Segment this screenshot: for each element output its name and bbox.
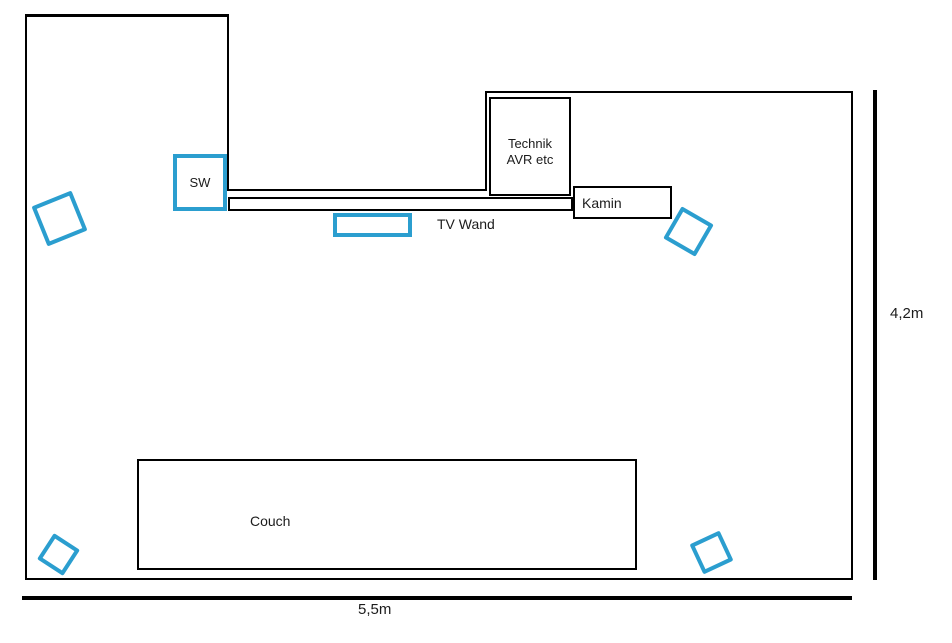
- couch-label: Couch: [250, 513, 290, 529]
- niche-vertical-wall: [485, 91, 487, 191]
- tv-wall-band: [228, 197, 573, 211]
- alcove-top-wall: [25, 14, 229, 17]
- subwoofer-box: SW: [173, 154, 227, 211]
- height-dimension-label: 4,2m: [890, 306, 923, 322]
- technik-label-line1: Technik: [508, 136, 552, 152]
- technik-label-line2: AVR etc: [507, 152, 554, 168]
- room-floor-plan: 4,2m 5,5m TV Wand Technik AVR etc Kamin …: [0, 0, 952, 643]
- width-dimension-label: 5,5m: [358, 602, 391, 618]
- tv-wall-back-line: [227, 189, 487, 191]
- technik-box: Technik AVR etc: [489, 97, 571, 196]
- top-wall: [485, 91, 853, 93]
- right-wall: [851, 91, 853, 580]
- kamin-box: Kamin: [573, 186, 672, 219]
- speaker-rear-right: [690, 531, 734, 575]
- speaker-front-left: [32, 191, 88, 247]
- height-dimension-line: [873, 90, 877, 580]
- couch-box: Couch: [137, 459, 637, 570]
- speaker-rear-left: [37, 533, 80, 576]
- bottom-wall: [25, 578, 853, 580]
- left-wall: [25, 14, 27, 580]
- tv-box: [333, 213, 412, 237]
- width-dimension-line: [22, 596, 852, 600]
- tv-wall-label: TV Wand: [437, 216, 495, 232]
- alcove-right-wall: [227, 14, 229, 191]
- subwoofer-label: SW: [190, 175, 211, 190]
- kamin-label: Kamin: [582, 195, 622, 211]
